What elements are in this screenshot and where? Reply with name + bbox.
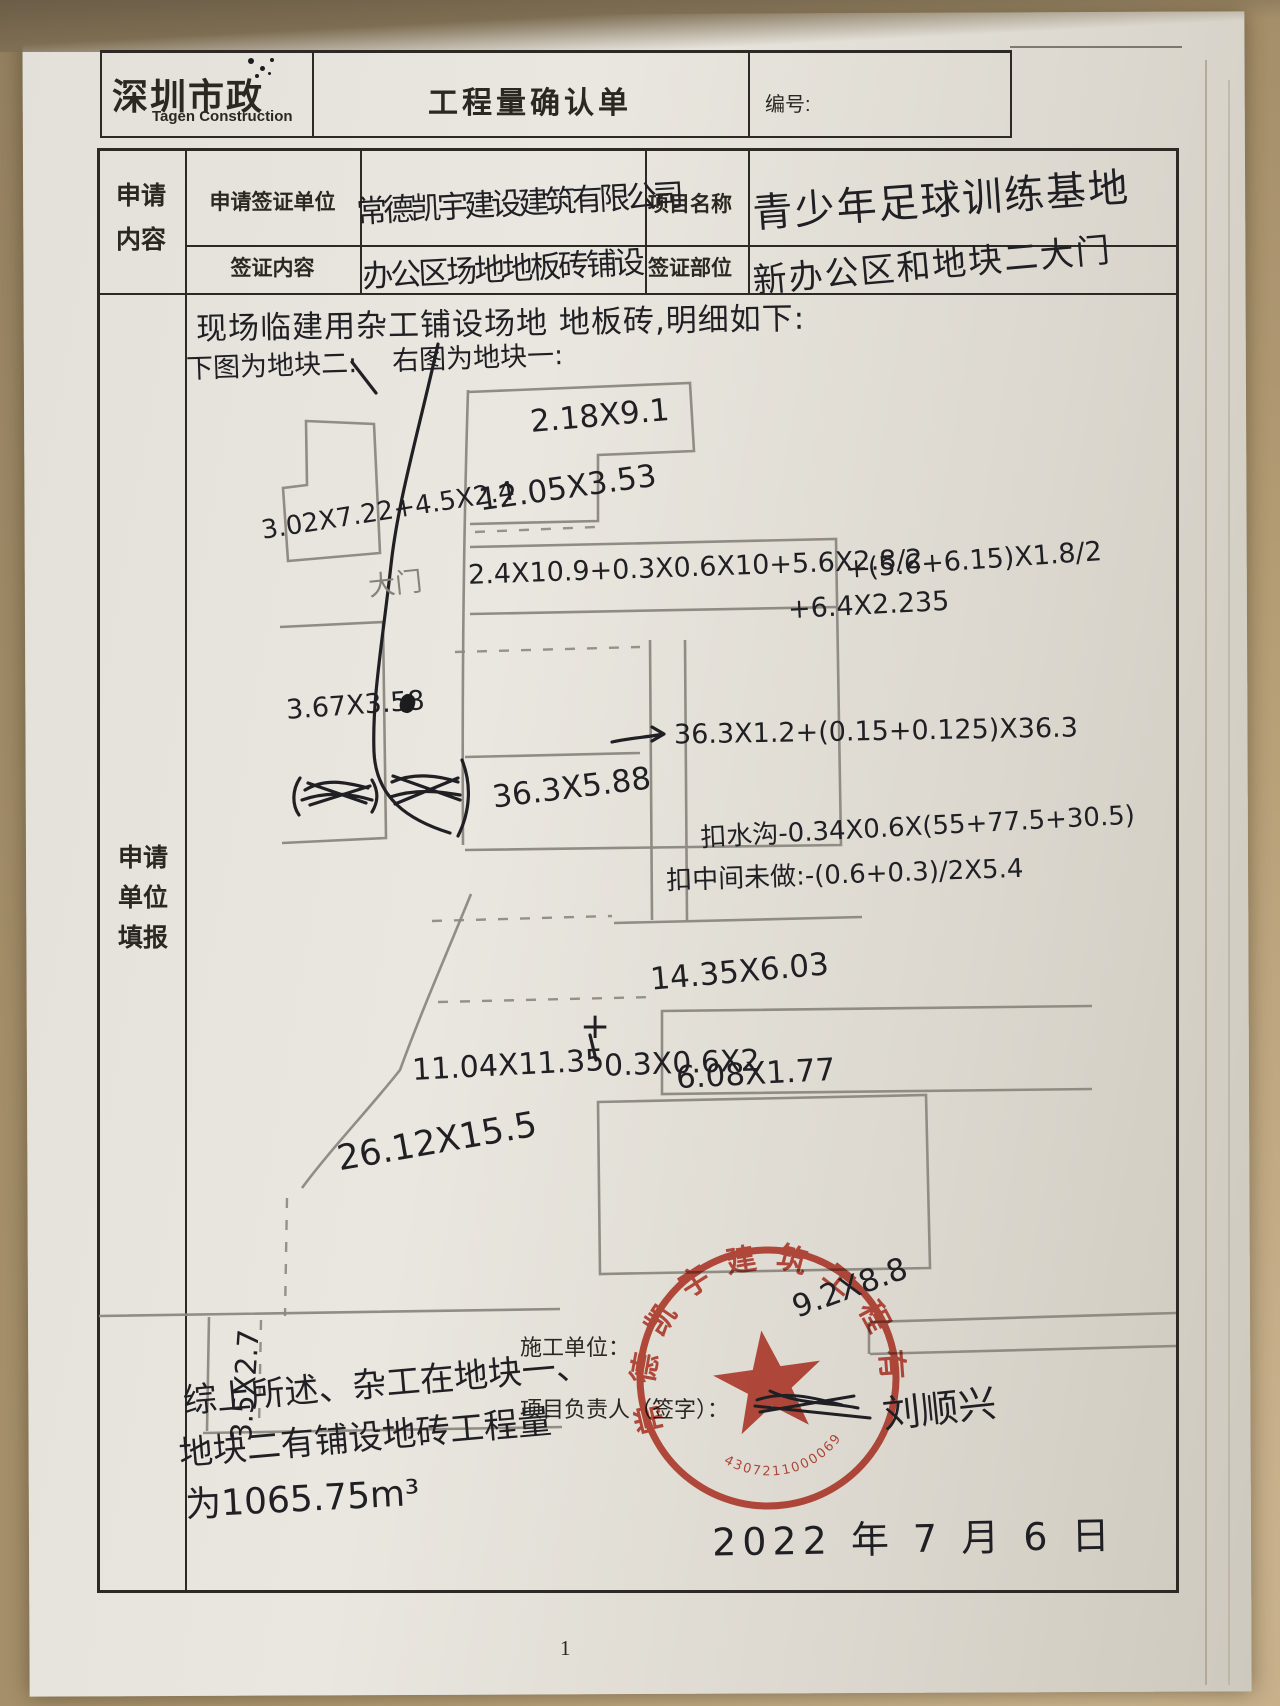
page-number: 1 [560, 1636, 571, 1661]
table-right-border [1176, 148, 1179, 1593]
gate-label: 大门 [366, 559, 424, 603]
header-left-border [100, 50, 102, 138]
company-logo-subtitle: Tagen Construction [152, 108, 293, 125]
table-bottom-border [97, 1590, 1179, 1593]
header-top-border-ext [1010, 46, 1182, 48]
left-header-main-line3: 填报 [118, 918, 168, 954]
left-header-main-line1: 申请 [118, 838, 168, 874]
logo-dots-icon [270, 58, 274, 62]
left-header-top-line1: 申请 [116, 176, 166, 212]
stamp-star-icon [708, 1323, 829, 1437]
logo-dots-icon [260, 66, 265, 71]
logo-dots-icon [268, 72, 271, 75]
header-top-border [100, 50, 1012, 53]
form-title: 工程量确认单 [312, 78, 748, 122]
scanned-form-photo: 深圳市政 Tagen Construction 工程量确认单 编号: 申请 内容… [0, 0, 1280, 1706]
logo-dots-icon [255, 74, 259, 78]
table-top-border [97, 148, 1179, 151]
left-header-main-line2: 单位 [118, 878, 168, 914]
left-header-top-line2: 内容 [116, 220, 166, 256]
page-edge-line [1205, 60, 1207, 1685]
desk-edge [0, 0, 1280, 52]
table-col-divider-4 [748, 148, 750, 293]
row1-label: 申请签证单位 [185, 186, 360, 216]
table-col-divider-3 [645, 148, 647, 293]
sketch-right-caption: 右图为地块一: [391, 333, 563, 378]
sketch-left-caption: 下图为地块二: [185, 341, 357, 386]
page-edge-line-2 [1228, 80, 1230, 1685]
table-left-border [97, 148, 100, 1593]
logo-dots-icon [248, 58, 254, 64]
header-right-border [1010, 50, 1012, 138]
row2-label: 签证内容 [185, 252, 360, 282]
inserted-plus: + [580, 1006, 610, 1047]
form-number-label: 编号: [765, 88, 811, 117]
header-bottom-border [100, 136, 1012, 138]
header-divider-2 [748, 50, 750, 138]
row2-label2: 签证部位 [648, 252, 732, 282]
